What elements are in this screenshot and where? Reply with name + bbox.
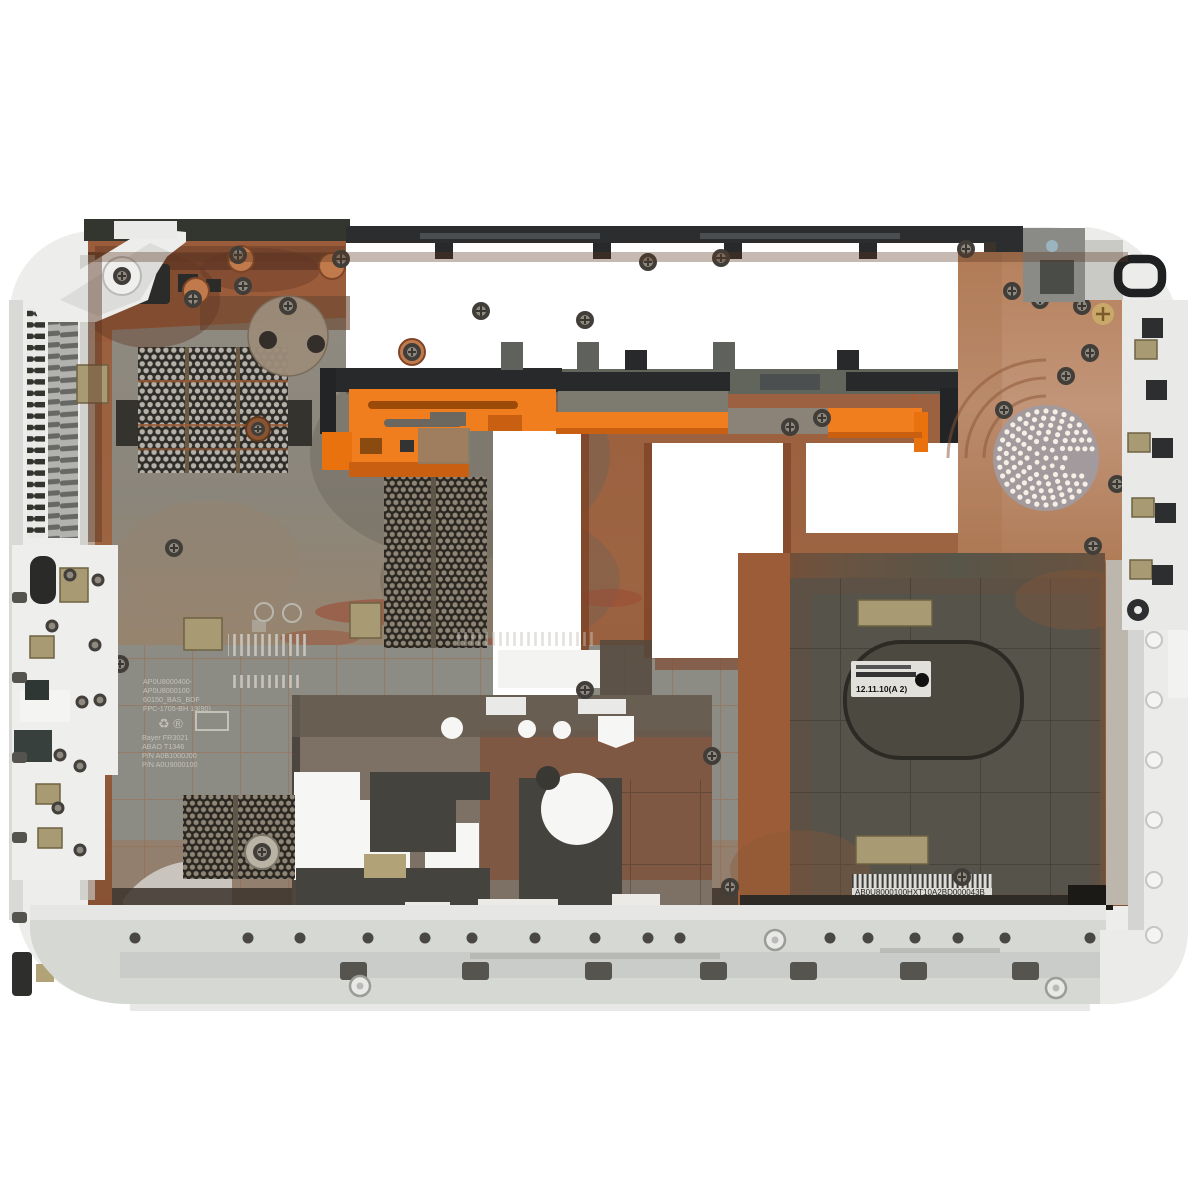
- svg-text:ABAO T1346: ABAO T1346: [142, 742, 184, 751]
- svg-text:P/N A0B1000J00: P/N A0B1000J00: [142, 751, 197, 760]
- svg-text:P/N A0U9000100: P/N A0U9000100: [142, 760, 198, 769]
- svg-text:60150_BAS_BDF: 60150_BAS_BDF: [143, 695, 200, 704]
- svg-text:♻ ®: ♻ ®: [158, 716, 183, 731]
- svg-text:AP0U8000400-: AP0U8000400-: [143, 677, 193, 686]
- svg-text:Bayer FR3021: Bayer FR3021: [142, 733, 188, 742]
- svg-text:12.11.10(A 2): 12.11.10(A 2): [856, 684, 907, 694]
- svg-text:AP0U8000100: AP0U8000100: [143, 686, 190, 695]
